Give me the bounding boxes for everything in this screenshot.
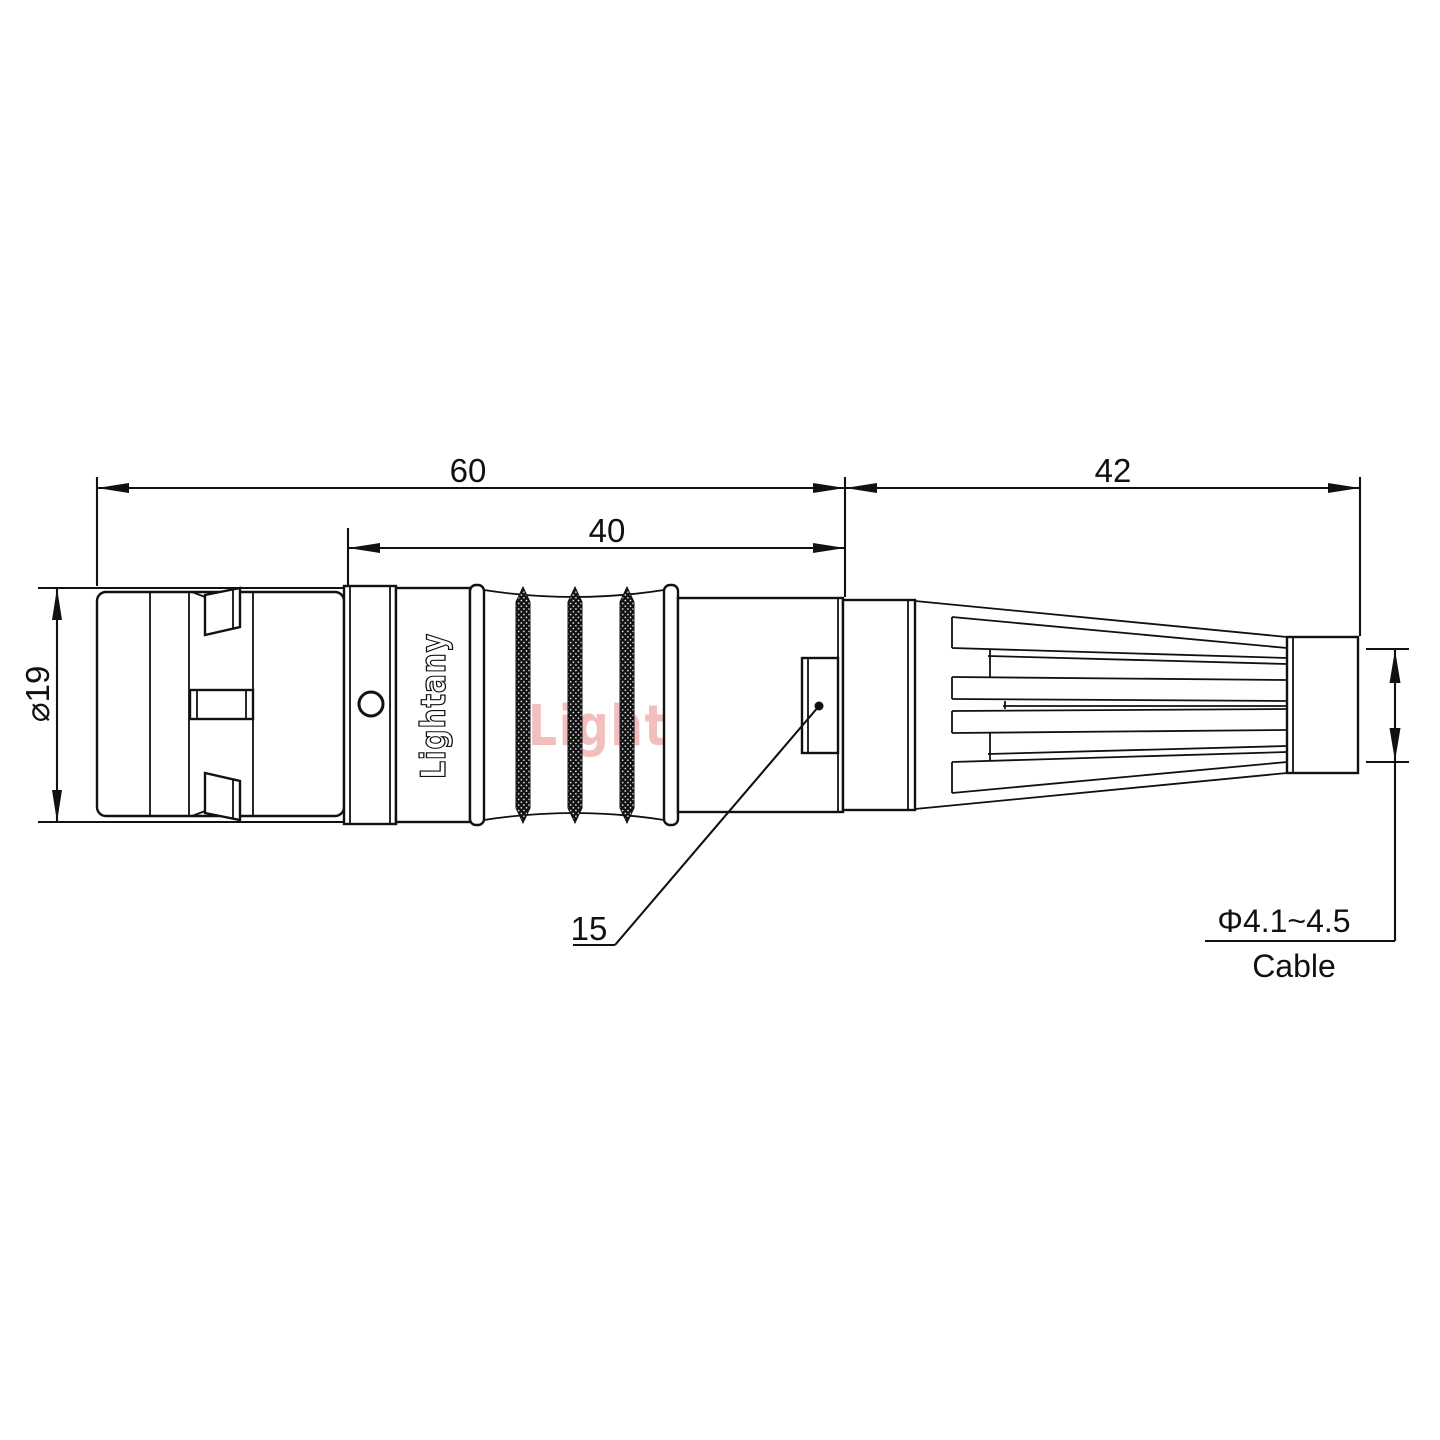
brand-sleeve: Lightany (396, 588, 470, 822)
knurl-band (516, 587, 530, 823)
dim-rear-length-label: 42 (1095, 452, 1132, 489)
arrow-up (1390, 650, 1401, 683)
cable-sleeve (1287, 637, 1358, 773)
back-body (678, 598, 843, 812)
keyway-slot (190, 690, 253, 719)
dim-grip-length-40: 40 (348, 512, 845, 586)
dim-grip-length-label: 40 (589, 512, 626, 549)
cable-caption-label: Cable (1252, 948, 1336, 984)
drawing-page: Lightany Lightan (0, 0, 1440, 1440)
cable-diameter-label: Φ4.1~4.5 (1217, 903, 1350, 939)
brand-engraving: Lightany (414, 633, 454, 779)
coupling-collar (344, 586, 396, 824)
arrow-down (1390, 728, 1401, 761)
vent-hole (359, 692, 383, 716)
knurl-band (568, 587, 582, 823)
technical-drawing-canvas: Lightany Lightan (0, 0, 1440, 1440)
front-shell (97, 588, 344, 820)
knurl-band (620, 587, 634, 823)
backshell-window (802, 658, 838, 753)
dim-overall-length-60: 60 (97, 452, 845, 597)
dim-overall-length-label: 60 (450, 452, 487, 489)
dim-detail-15-label: 15 (571, 910, 608, 947)
dim-diameter-label: ⌀19 (19, 666, 56, 723)
